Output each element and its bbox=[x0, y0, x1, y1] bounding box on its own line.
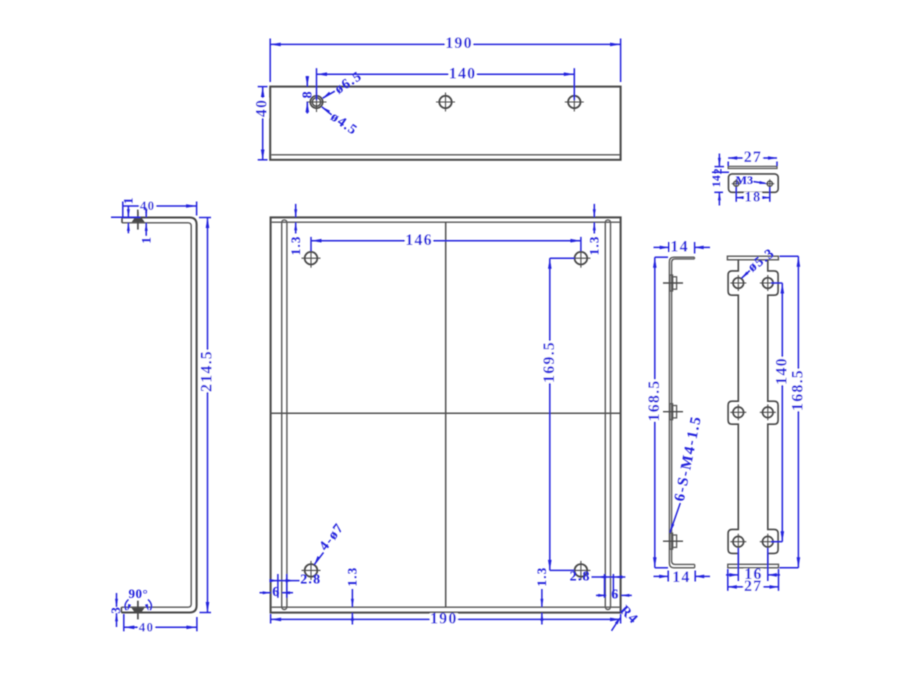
svg-text:14: 14 bbox=[670, 238, 688, 255]
svg-text:40: 40 bbox=[253, 99, 270, 117]
svg-text:90°: 90° bbox=[129, 586, 149, 601]
svg-text:27: 27 bbox=[744, 578, 762, 595]
svg-text:18: 18 bbox=[745, 189, 762, 205]
svg-text:40: 40 bbox=[139, 619, 154, 634]
svg-text:2.8: 2.8 bbox=[570, 569, 591, 584]
svg-text:1.3: 1.3 bbox=[288, 235, 303, 255]
svg-text:190: 190 bbox=[445, 35, 473, 52]
svg-text:14: 14 bbox=[672, 569, 690, 586]
svg-text:169.5: 169.5 bbox=[541, 341, 558, 383]
svg-text:140: 140 bbox=[449, 66, 477, 83]
svg-text:146: 146 bbox=[405, 232, 433, 249]
svg-text:1.3: 1.3 bbox=[534, 567, 549, 587]
svg-text:6: 6 bbox=[272, 585, 280, 600]
svg-text:1: 1 bbox=[120, 196, 135, 204]
svg-text:3: 3 bbox=[108, 606, 123, 614]
svg-text:14: 14 bbox=[711, 175, 723, 187]
svg-text:168.5: 168.5 bbox=[789, 369, 806, 411]
svg-text:168.5: 168.5 bbox=[646, 380, 663, 422]
svg-text:8: 8 bbox=[300, 90, 315, 98]
svg-text:1.3: 1.3 bbox=[587, 235, 602, 255]
svg-text:6: 6 bbox=[611, 587, 619, 602]
svg-text:2: 2 bbox=[712, 168, 724, 174]
svg-text:140: 140 bbox=[773, 357, 790, 385]
svg-text:214.5: 214.5 bbox=[199, 350, 216, 392]
svg-text:40: 40 bbox=[140, 198, 155, 213]
svg-text:27: 27 bbox=[744, 149, 762, 166]
svg-text:190: 190 bbox=[430, 611, 458, 628]
svg-text:2.8: 2.8 bbox=[300, 572, 321, 587]
svg-text:M3: M3 bbox=[736, 173, 754, 187]
svg-text:1: 1 bbox=[139, 236, 154, 244]
svg-text:1.3: 1.3 bbox=[345, 567, 360, 587]
